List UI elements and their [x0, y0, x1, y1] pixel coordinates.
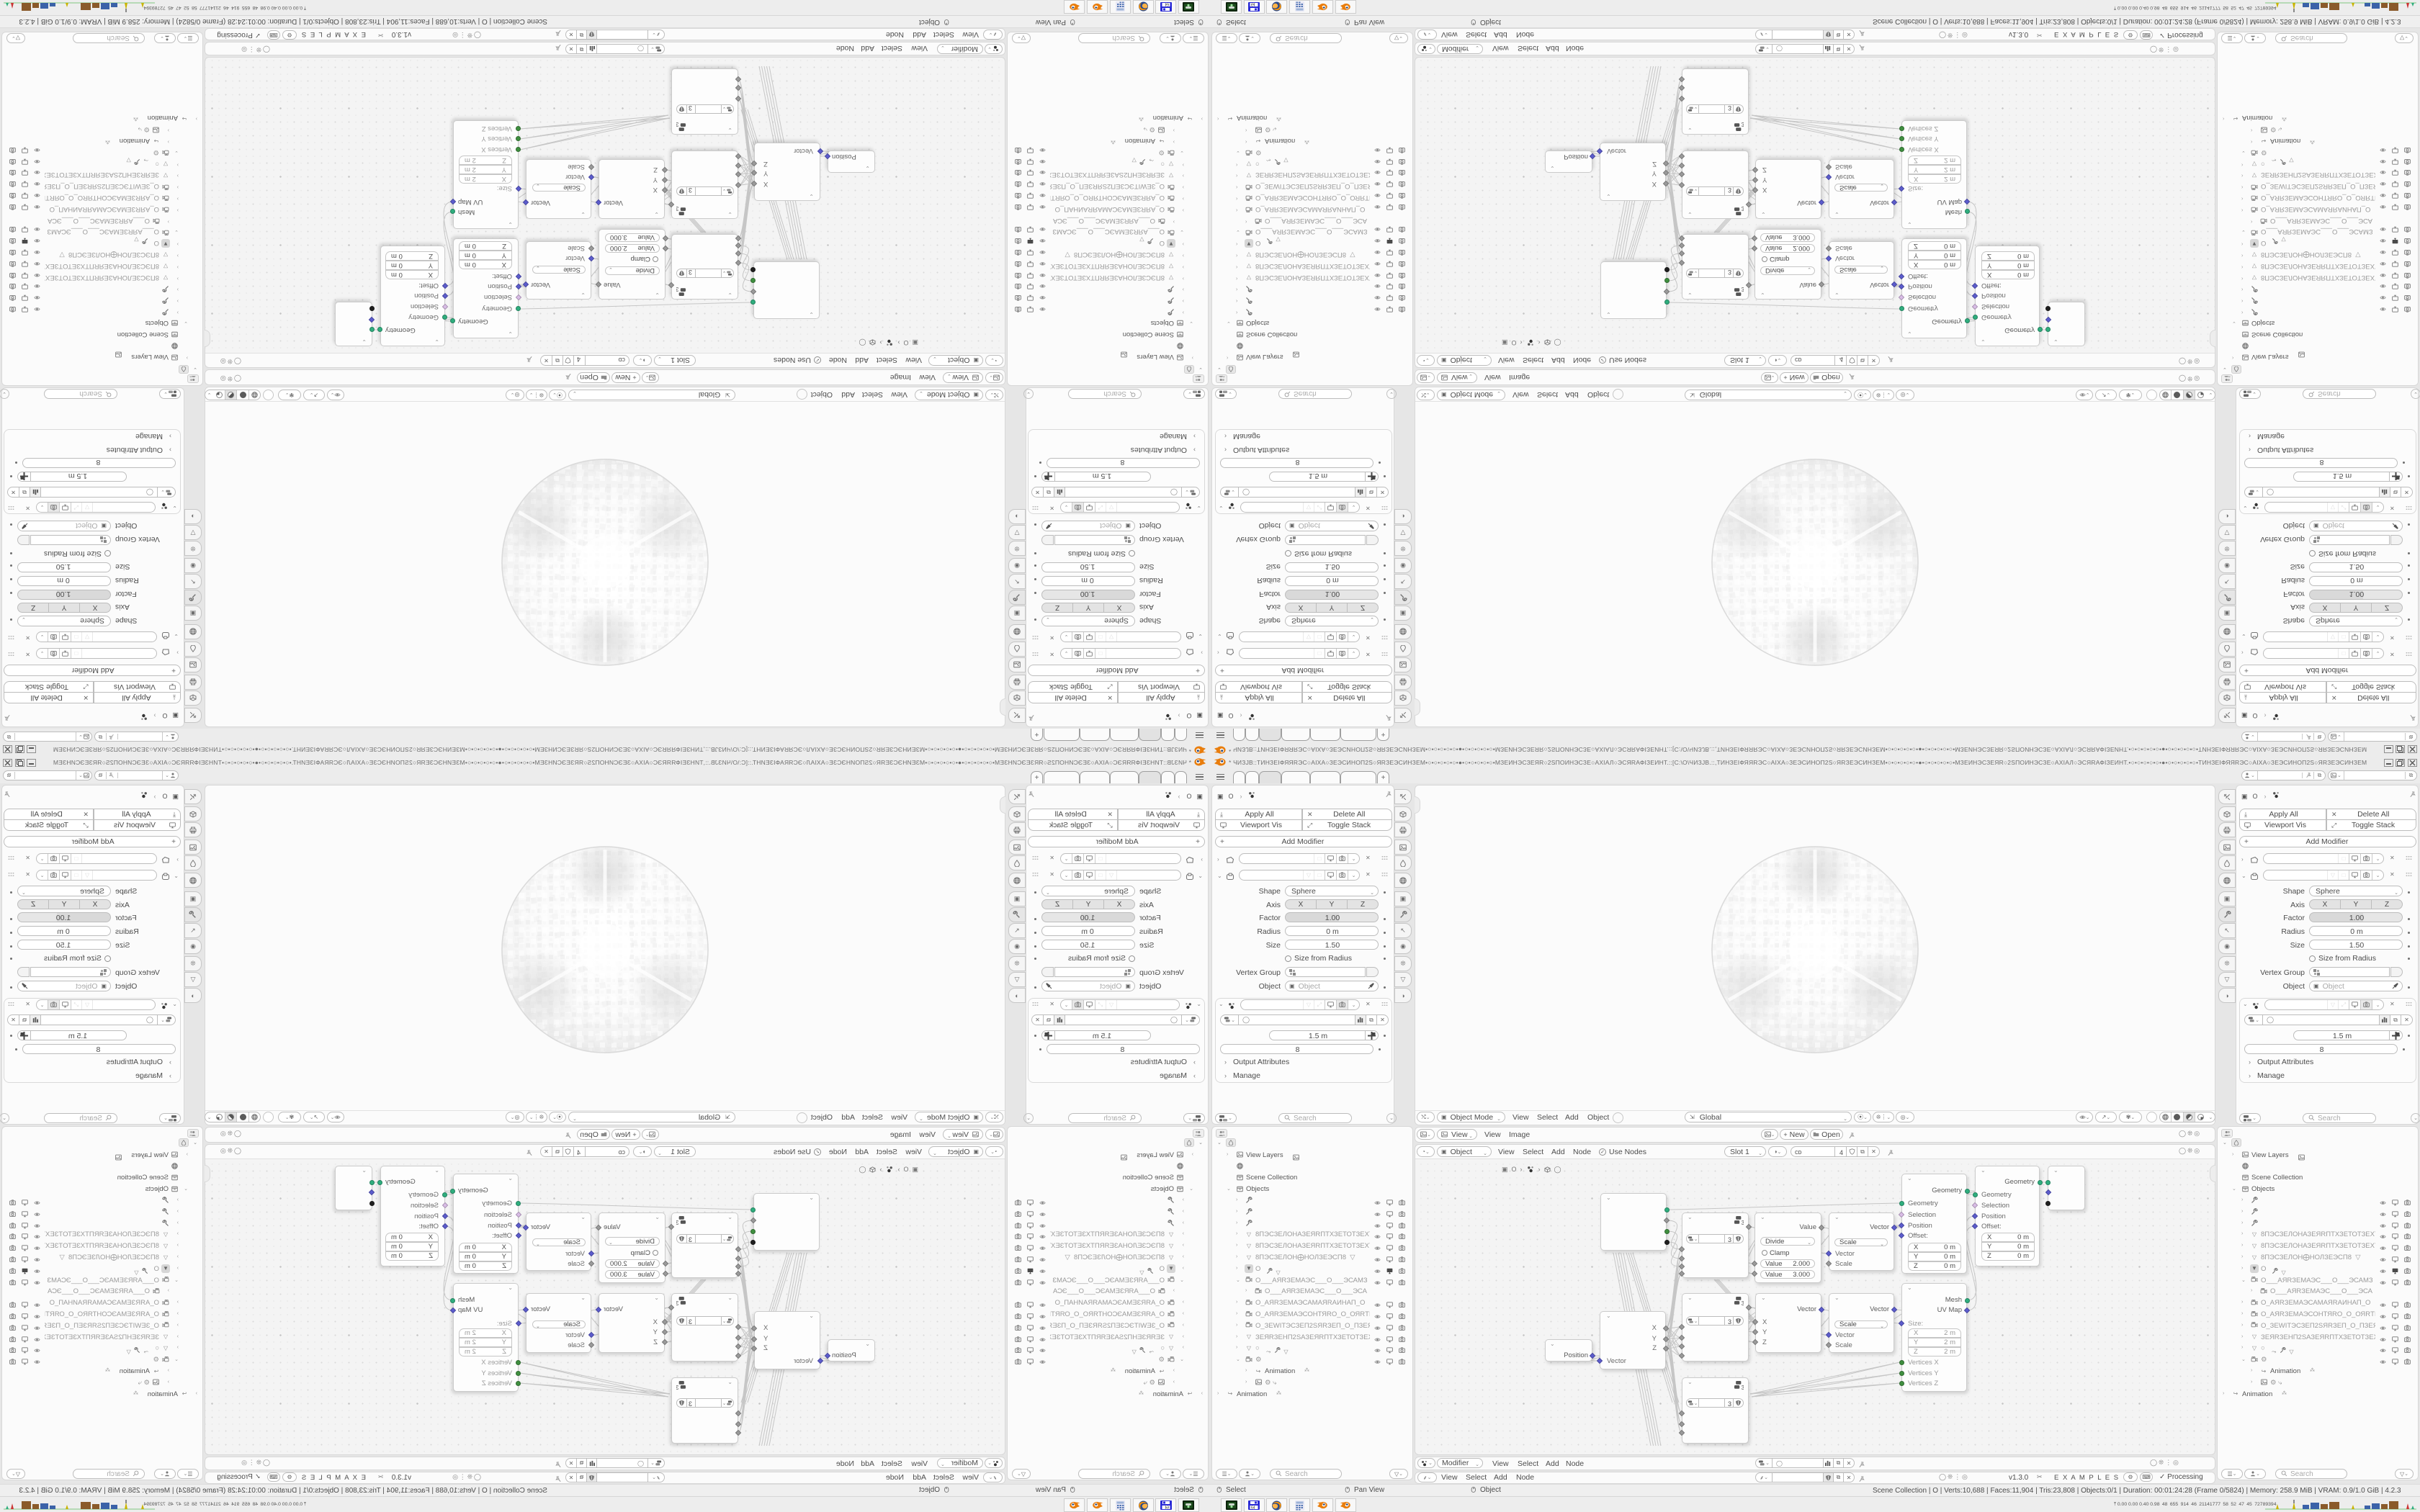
svg-text:64: 64: [1251, 1506, 1255, 1511]
svg-text:64: 64: [1165, 1506, 1169, 1511]
svg-text:64: 64: [1165, 2, 1169, 6]
svg-text:64: 64: [1251, 2, 1255, 6]
